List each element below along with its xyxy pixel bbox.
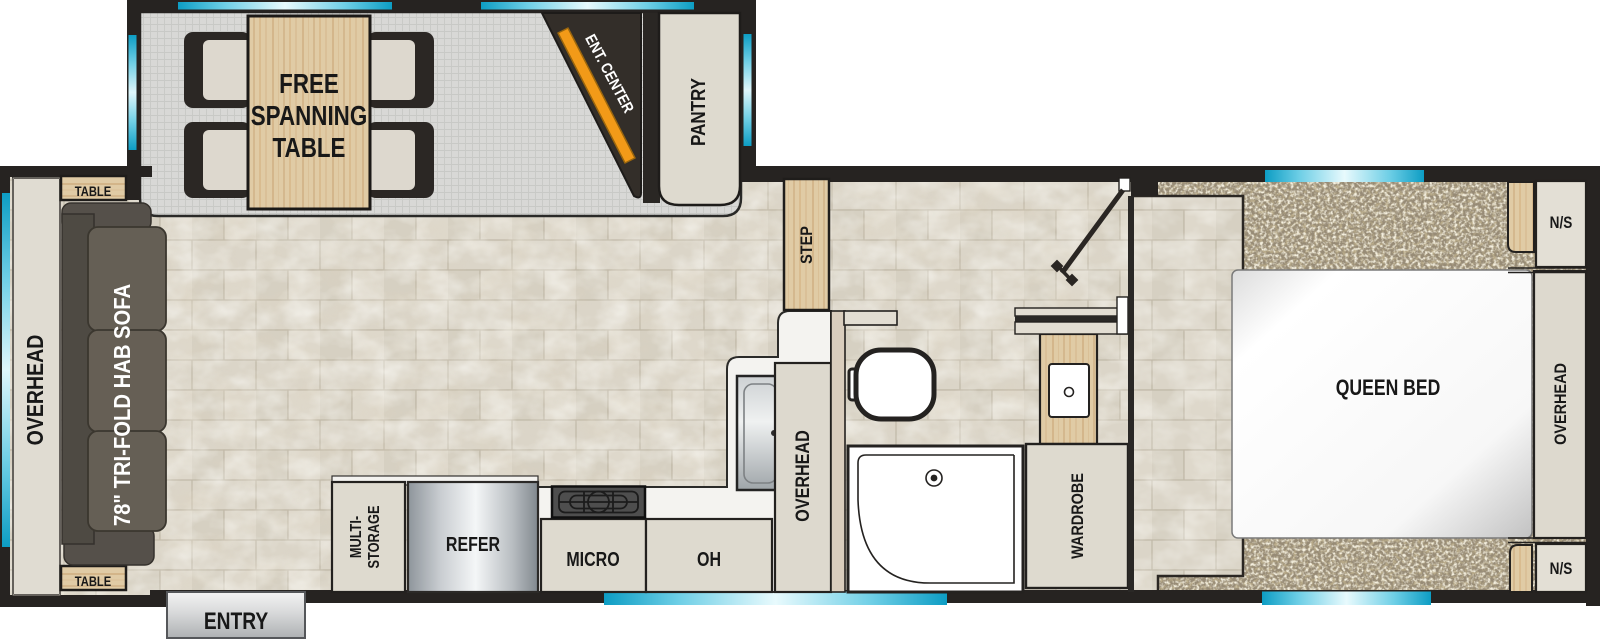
svg-text:SPANNING: SPANNING bbox=[251, 101, 368, 132]
svg-text:78" TRI-FOLD HAB SOFA: 78" TRI-FOLD HAB SOFA bbox=[109, 284, 136, 527]
svg-text:WARDROBE: WARDROBE bbox=[1069, 473, 1087, 559]
svg-text:FREE: FREE bbox=[279, 69, 339, 100]
svg-text:OH: OH bbox=[697, 548, 721, 570]
svg-text:OVERHEAD: OVERHEAD bbox=[792, 430, 814, 521]
svg-text:OVERHEAD: OVERHEAD bbox=[23, 335, 49, 446]
svg-text:PANTRY: PANTRY bbox=[687, 77, 710, 146]
svg-text:TABLE: TABLE bbox=[75, 574, 111, 589]
svg-text:ENTRY: ENTRY bbox=[204, 607, 269, 635]
svg-text:STORAGE: STORAGE bbox=[366, 505, 384, 568]
svg-text:STEP: STEP bbox=[798, 226, 816, 264]
svg-text:QUEEN BED: QUEEN BED bbox=[1336, 376, 1441, 400]
svg-text:TABLE: TABLE bbox=[75, 184, 111, 199]
svg-text:MICRO: MICRO bbox=[566, 548, 619, 570]
svg-text:TABLE: TABLE bbox=[273, 133, 346, 164]
svg-text:REFER: REFER bbox=[446, 533, 500, 555]
svg-text:N/S: N/S bbox=[1550, 560, 1573, 579]
svg-text:MULTI-: MULTI- bbox=[348, 516, 366, 559]
svg-text:N/S: N/S bbox=[1550, 214, 1573, 233]
svg-text:OVERHEAD: OVERHEAD bbox=[1552, 363, 1570, 445]
